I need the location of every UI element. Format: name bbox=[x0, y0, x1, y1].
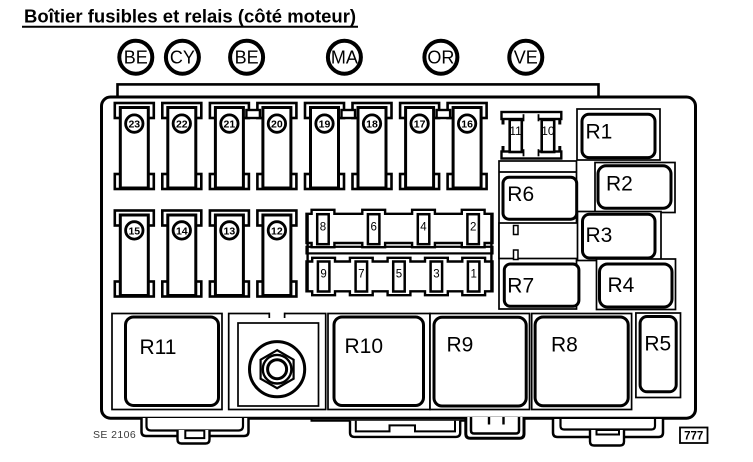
svg-text:15: 15 bbox=[128, 225, 140, 237]
svg-text:5: 5 bbox=[396, 269, 402, 281]
svg-text:2: 2 bbox=[470, 222, 476, 234]
svg-text:6: 6 bbox=[370, 222, 376, 234]
svg-text:R2: R2 bbox=[606, 173, 633, 196]
svg-text:R5: R5 bbox=[644, 333, 671, 356]
svg-text:MA: MA bbox=[331, 48, 358, 68]
svg-text:9: 9 bbox=[320, 269, 326, 281]
svg-text:17: 17 bbox=[414, 119, 426, 131]
svg-text:23: 23 bbox=[128, 119, 140, 131]
svg-text:R11: R11 bbox=[140, 336, 177, 359]
svg-text:R7: R7 bbox=[507, 275, 534, 298]
svg-text:7: 7 bbox=[358, 269, 364, 281]
svg-text:14: 14 bbox=[176, 225, 188, 237]
svg-text:16: 16 bbox=[461, 119, 473, 131]
svg-text:1: 1 bbox=[470, 269, 476, 281]
svg-text:3: 3 bbox=[433, 269, 439, 281]
svg-text:12: 12 bbox=[271, 225, 283, 237]
svg-text:19: 19 bbox=[319, 119, 331, 131]
svg-text:R8: R8 bbox=[551, 334, 578, 357]
svg-text:18: 18 bbox=[366, 119, 378, 131]
svg-text:CY: CY bbox=[170, 48, 195, 68]
svg-text:777: 777 bbox=[684, 431, 703, 443]
svg-text:R4: R4 bbox=[608, 274, 635, 297]
svg-text:R6: R6 bbox=[507, 183, 534, 206]
svg-text:R3: R3 bbox=[586, 224, 613, 247]
svg-text:R1: R1 bbox=[586, 121, 613, 144]
svg-text:8: 8 bbox=[320, 222, 326, 234]
svg-text:BE: BE bbox=[124, 48, 148, 68]
svg-text:BE: BE bbox=[235, 48, 259, 68]
svg-text:Boîtier fusibles et relais (cô: Boîtier fusibles et relais (côté moteur) bbox=[24, 6, 356, 27]
svg-text:4: 4 bbox=[420, 222, 427, 234]
svg-text:R10: R10 bbox=[345, 335, 384, 358]
svg-text:R9: R9 bbox=[447, 334, 474, 357]
svg-text:22: 22 bbox=[176, 119, 188, 131]
svg-text:11: 11 bbox=[509, 124, 522, 138]
svg-text:21: 21 bbox=[224, 119, 236, 131]
svg-text:OR: OR bbox=[427, 48, 454, 68]
svg-text:13: 13 bbox=[224, 225, 236, 237]
svg-text:20: 20 bbox=[271, 119, 283, 131]
svg-text:VE: VE bbox=[514, 48, 538, 68]
svg-text:SE 2106: SE 2106 bbox=[93, 429, 136, 441]
svg-text:10: 10 bbox=[541, 124, 555, 138]
